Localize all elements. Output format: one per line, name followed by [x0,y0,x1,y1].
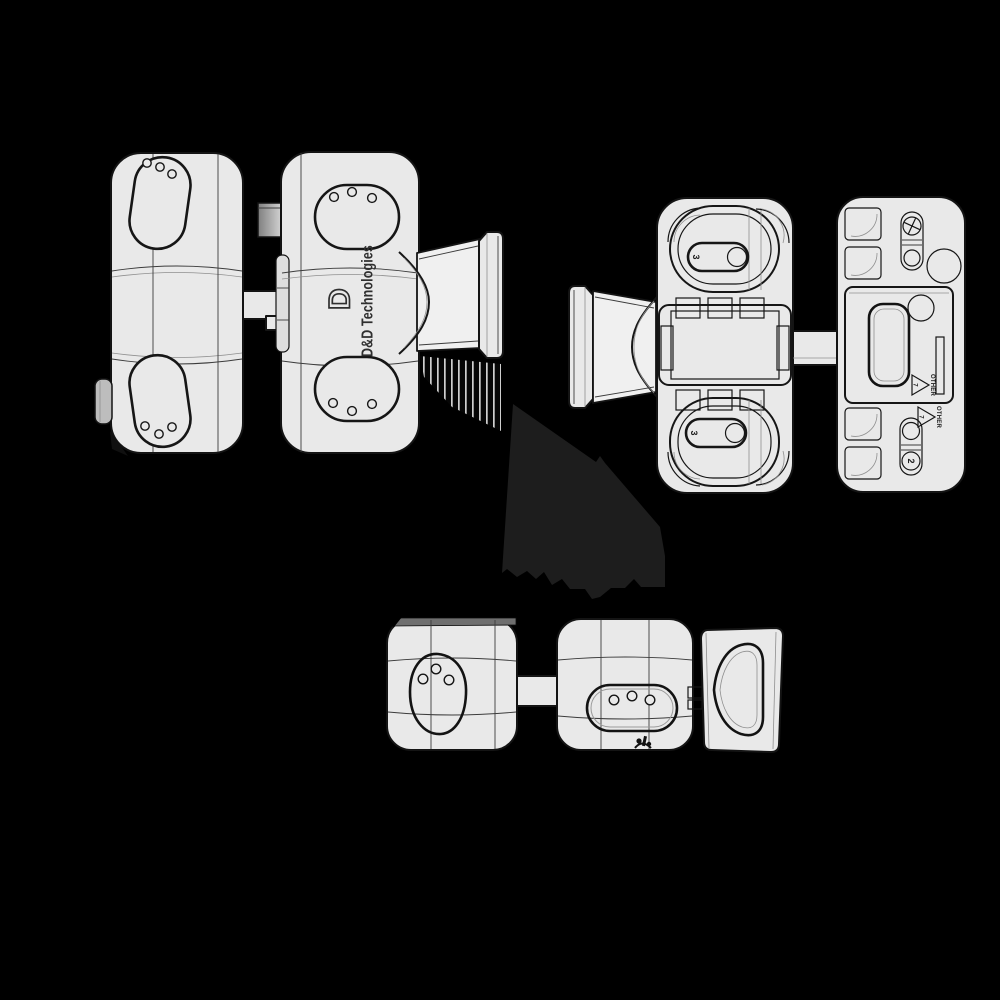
mold-mark-2: 2 [906,458,916,463]
top-pull-knob [701,628,783,752]
connector-bar [517,676,557,706]
hinge-knuckle [276,255,289,352]
front-view: D D&D Technologies [95,152,503,456]
top-face-strip [390,618,516,626]
back-pull-knob [569,286,659,408]
connector-bar [793,331,838,365]
back-fixing-plate: 7 OTHER 7 OTHER 2 [837,197,965,492]
front-left-plate [95,153,243,456]
recycle-label: OTHER [929,374,935,396]
recycle-label: OTHER [935,406,941,428]
side-lug [95,379,112,424]
back-view: 3 [569,197,965,493]
mold-mark-3: 3 [691,254,701,259]
back-latch-case: 3 [657,198,793,493]
gate-latch-illustration: D D&D Technologies [0,0,1000,1000]
recycle-code: 7 [918,415,924,419]
mold-mark-3: 3 [689,430,699,435]
top-latch-body [557,619,693,750]
screw-recess [315,185,399,249]
brand-roundel-letter: D [324,288,357,310]
cast-shadow [502,404,665,599]
brand-text: D&D Technologies [360,245,377,357]
knob-shadow-hatch [420,356,501,431]
recycle-code: 7 [912,383,918,387]
knob-flange [569,286,593,408]
top-left-plate [387,617,517,750]
product-illustration-page: D D&D Technologies [0,0,1000,1000]
top-view [387,617,783,752]
knob-flange [479,232,503,358]
front-latch-body: D D&D Technologies [276,152,419,453]
screw-recess [315,357,399,421]
